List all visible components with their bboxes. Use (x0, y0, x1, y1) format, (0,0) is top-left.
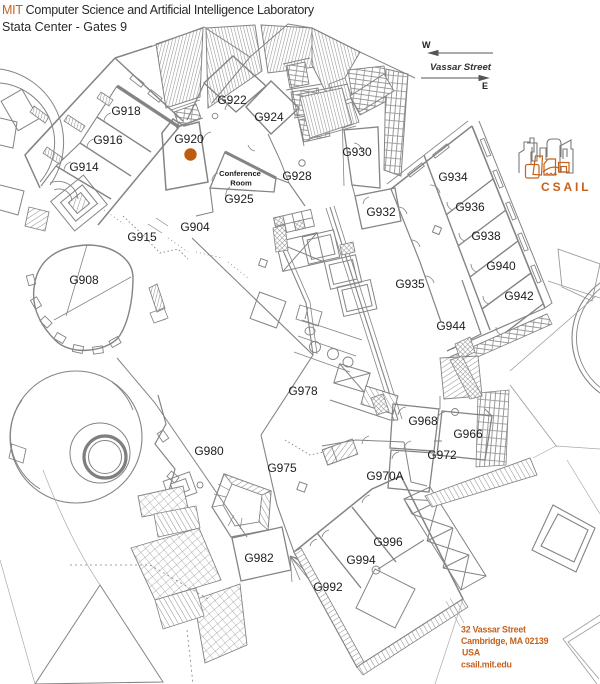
svg-text:G994: G994 (346, 553, 376, 567)
svg-text:G966: G966 (453, 427, 483, 441)
svg-text:G996: G996 (373, 535, 403, 549)
svg-text:G970A: G970A (366, 469, 403, 483)
svg-text:MIT Computer Science and Artif: MIT Computer Science and Artificial Inte… (2, 3, 315, 17)
svg-text:G916: G916 (93, 133, 123, 147)
svg-text:G928: G928 (282, 169, 312, 183)
svg-text:G925: G925 (224, 192, 254, 206)
svg-text:G922: G922 (217, 93, 247, 107)
svg-text:G930: G930 (342, 145, 372, 159)
svg-text:CSAIL: CSAIL (541, 180, 592, 194)
svg-text:G936: G936 (455, 200, 485, 214)
svg-text:Vassar Street: Vassar Street (430, 62, 492, 73)
svg-text:G932: G932 (366, 205, 396, 219)
svg-text:G934: G934 (438, 170, 468, 184)
svg-text:csail.mit.edu: csail.mit.edu (461, 660, 512, 670)
svg-text:G935: G935 (395, 277, 425, 291)
svg-text:Stata Center - Gates 9: Stata Center - Gates 9 (2, 20, 127, 34)
svg-text:USA: USA (462, 648, 481, 658)
svg-text:G980: G980 (194, 444, 224, 458)
svg-text:G968: G968 (408, 414, 438, 428)
svg-text:G944: G944 (436, 319, 466, 333)
svg-text:G920: G920 (174, 132, 204, 146)
svg-text:G975: G975 (267, 461, 297, 475)
svg-text:G982: G982 (244, 551, 274, 565)
svg-text:G978: G978 (288, 384, 318, 398)
svg-text:G904: G904 (180, 220, 210, 234)
svg-text:W: W (422, 40, 431, 50)
svg-text:Cambridge, MA 02139: Cambridge, MA 02139 (461, 636, 549, 646)
svg-text:G924: G924 (254, 110, 284, 124)
svg-text:G992: G992 (313, 580, 343, 594)
svg-text:G918: G918 (111, 104, 141, 118)
svg-text:G938: G938 (471, 229, 501, 243)
svg-text:Room: Room (230, 179, 252, 188)
svg-text:32 Vassar Street: 32 Vassar Street (461, 625, 526, 635)
svg-text:G942: G942 (504, 289, 534, 303)
svg-text:G908: G908 (69, 273, 99, 287)
svg-text:G940: G940 (486, 259, 516, 273)
svg-text:E: E (482, 81, 488, 91)
svg-text:G914: G914 (69, 160, 99, 174)
svg-text:Conference: Conference (219, 169, 261, 178)
svg-text:G915: G915 (127, 230, 157, 244)
svg-text:G972: G972 (427, 448, 457, 462)
